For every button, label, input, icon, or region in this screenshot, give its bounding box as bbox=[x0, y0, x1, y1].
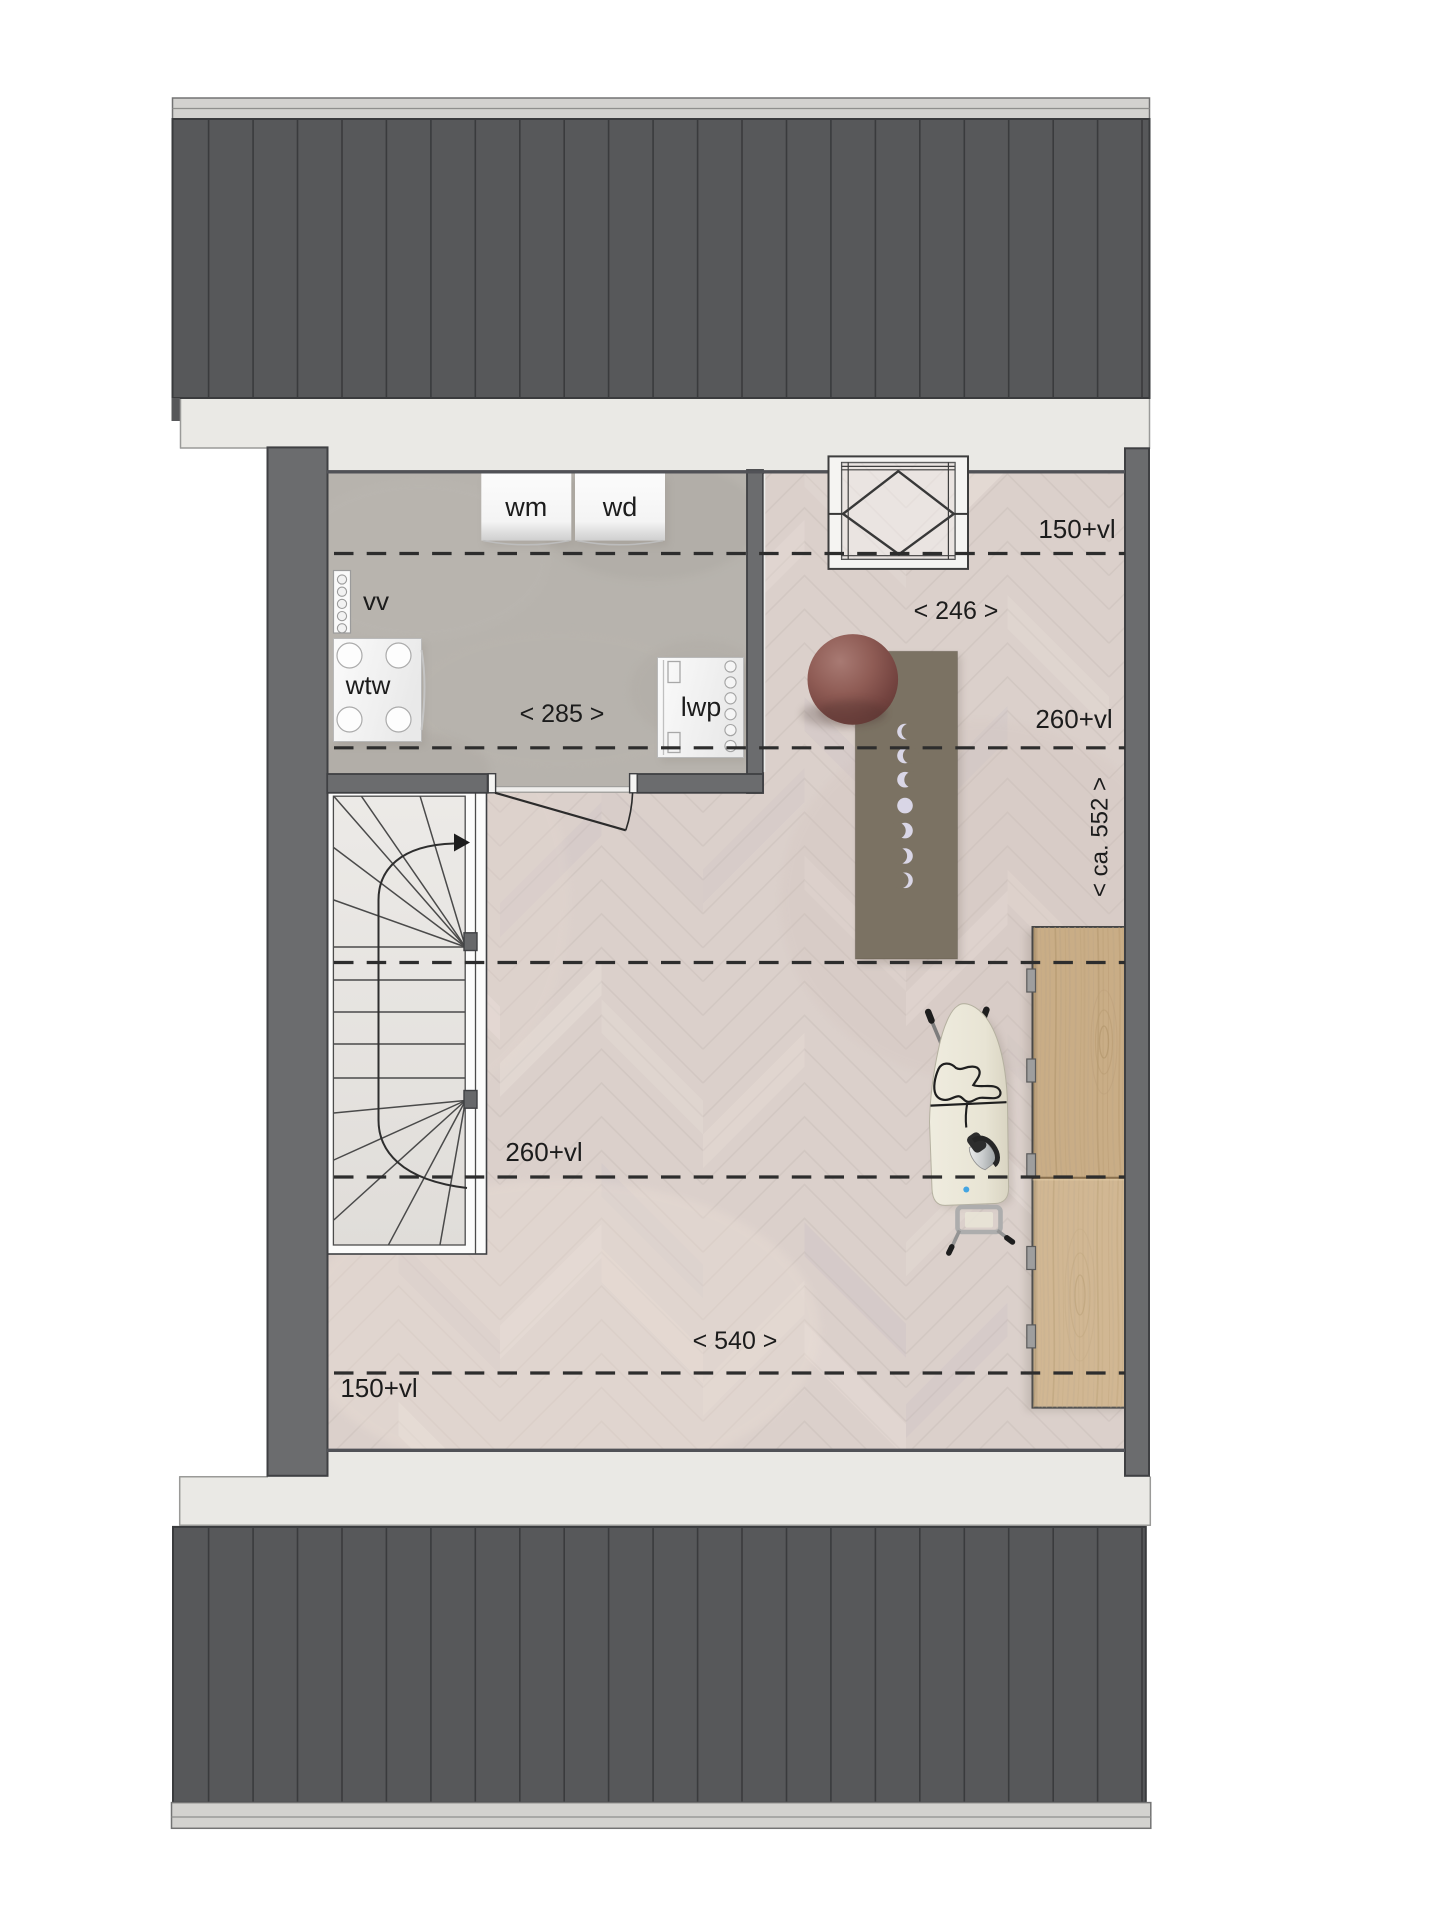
svg-text:150+vl: 150+vl bbox=[340, 1373, 417, 1403]
svg-text:< ca. 552 >: < ca. 552 > bbox=[1087, 777, 1114, 897]
svg-text:wtw: wtw bbox=[345, 670, 391, 700]
svg-text:< 246 >: < 246 > bbox=[914, 597, 999, 625]
svg-text:150+vl: 150+vl bbox=[1038, 514, 1115, 544]
svg-text:< 540 >: < 540 > bbox=[693, 1327, 778, 1355]
svg-text:< 285 >: < 285 > bbox=[520, 700, 605, 728]
svg-text:260+vl: 260+vl bbox=[1035, 704, 1112, 734]
svg-text:wd: wd bbox=[602, 492, 638, 522]
svg-text:vv: vv bbox=[363, 586, 389, 616]
svg-text:lwp: lwp bbox=[681, 692, 722, 722]
svg-text:260+vl: 260+vl bbox=[505, 1137, 582, 1167]
svg-text:wm: wm bbox=[504, 492, 547, 522]
